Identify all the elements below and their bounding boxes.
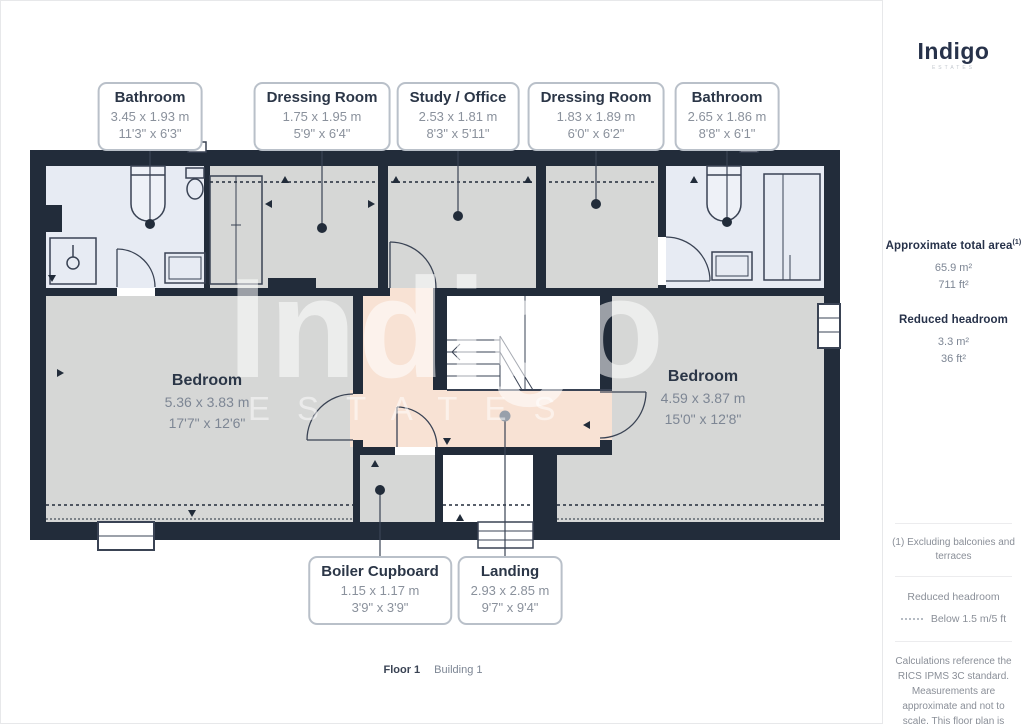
room-label-bedroom-right: Bedroom 4.59 x 3.87 m 15'0" x 12'8" — [661, 366, 746, 429]
reduced-headroom-block: Reduced headroom 3.3 m² 36 ft² — [883, 314, 1024, 368]
total-area-block: Approximate total area(1) 65.9 m² 711 ft… — [883, 239, 1024, 294]
total-area-imperial: 711 ft² — [883, 277, 1024, 294]
leader-dot — [375, 485, 385, 495]
brand-logo: Indigo ESTATES — [883, 40, 1024, 71]
room-name: Bathroom — [111, 88, 190, 108]
brand-logo-text: Indigo — [883, 40, 1024, 63]
window-right — [818, 304, 840, 348]
room-name: Bathroom — [688, 88, 767, 108]
leader-dot — [317, 223, 327, 233]
room-imperial: 17'7" x 12'6" — [165, 413, 250, 433]
room-metric: 5.36 x 3.83 m — [165, 392, 250, 412]
reduced-headroom-imperial: 36 ft² — [883, 351, 1024, 368]
room-label-dressing-left: Dressing Room 1.75 x 1.95 m 5'9" x 6'4" — [254, 82, 391, 151]
room-label-bathroom-right: Bathroom 2.65 x 1.86 m 8'8" x 6'1" — [675, 82, 780, 151]
footnote-marker: (1) — [1012, 239, 1021, 246]
floor-footer: Floor 1Building 1 — [384, 664, 483, 676]
room-imperial: 5'9" x 6'4" — [267, 125, 378, 142]
room-name: Dressing Room — [267, 88, 378, 108]
floorplan-page: Indigo ESTATES Bathroom 3.45 x 1.93 m 11… — [0, 0, 1024, 724]
info-sidebar: Indigo ESTATES Approximate total area(1)… — [882, 0, 1024, 724]
legend-title: Reduced headroom — [891, 591, 1016, 603]
reduced-headroom-title: Reduced headroom — [883, 314, 1024, 326]
room-name: Study / Office — [410, 88, 507, 108]
brand-logo-subtext: ESTATES — [883, 65, 1024, 71]
room-metric: 4.59 x 3.87 m — [661, 388, 746, 408]
room-name: Bedroom — [661, 366, 746, 388]
room-name: Dressing Room — [541, 88, 652, 108]
room-imperial: 8'8" x 6'1" — [688, 125, 767, 142]
headroom-legend: Reduced headroom Below 1.5 m/5 ft — [883, 577, 1024, 641]
room-name: Boiler Cupboard — [321, 562, 439, 582]
total-area-title: Approximate total area(1) — [883, 239, 1024, 252]
leader-dot — [453, 211, 463, 221]
room-label-study-office: Study / Office 2.53 x 1.81 m 8'3" x 5'11… — [397, 82, 520, 151]
room-label-dressing-right: Dressing Room 1.83 x 1.89 m 6'0" x 6'2" — [528, 82, 665, 151]
area-stats: Approximate total area(1) 65.9 m² 711 ft… — [883, 239, 1024, 368]
building-label: Building 1 — [434, 664, 482, 676]
area-footnote: (1) Excluding balconies and terraces — [883, 524, 1024, 576]
leader-dot — [591, 199, 601, 209]
room-imperial: 11'3" x 6'3" — [111, 125, 190, 142]
disclaimer-text: Calculations reference the RICS IPMS 3C … — [883, 642, 1024, 724]
room-metric: 1.15 x 1.17 m — [321, 582, 439, 599]
leader-dot — [145, 219, 155, 229]
floor-label: Floor 1 — [384, 664, 421, 676]
total-area-metric: 65.9 m² — [883, 260, 1024, 277]
room-metric: 1.83 x 1.89 m — [541, 108, 652, 125]
room-label-boiler-cupboard: Boiler Cupboard 1.15 x 1.17 m 3'9" x 3'9… — [308, 556, 452, 625]
room-name: Bedroom — [165, 370, 250, 392]
leader-dot — [722, 217, 732, 227]
room-label-bathroom-left: Bathroom 3.45 x 1.93 m 11'3" x 6'3" — [98, 82, 203, 151]
room-metric: 2.65 x 1.86 m — [688, 108, 767, 125]
room-imperial: 9'7" x 9'4" — [471, 599, 550, 616]
bathtub-icon — [131, 166, 165, 221]
floorplan-main-area: Indigo ESTATES Bathroom 3.45 x 1.93 m 11… — [0, 0, 882, 724]
room-metric: 3.45 x 1.93 m — [111, 108, 190, 125]
room-metric: 1.75 x 1.95 m — [267, 108, 378, 125]
room-imperial: 6'0" x 6'2" — [541, 125, 652, 142]
room-name: Landing — [471, 562, 550, 582]
reduced-headroom-metric: 3.3 m² — [883, 334, 1024, 351]
room-imperial: 3'9" x 3'9" — [321, 599, 439, 616]
room-label-bedroom-left: Bedroom 5.36 x 3.83 m 17'7" x 12'6" — [165, 370, 250, 433]
room-metric: 2.53 x 1.81 m — [410, 108, 507, 125]
room-imperial: 8'3" x 5'11" — [410, 125, 507, 142]
leader-dot-landing — [500, 411, 511, 422]
room-label-landing: Landing 2.93 x 2.85 m 9'7" x 9'4" — [458, 556, 563, 625]
legend-label: Below 1.5 m/5 ft — [931, 613, 1006, 625]
room-metric: 2.93 x 2.85 m — [471, 582, 550, 599]
room-imperial: 15'0" x 12'8" — [661, 409, 746, 429]
dotted-line-swatch — [901, 618, 923, 620]
